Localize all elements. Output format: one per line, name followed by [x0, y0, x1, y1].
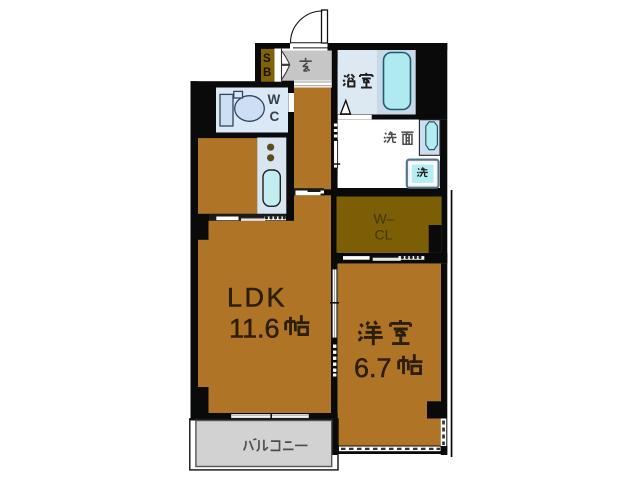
svg-text:B: B: [263, 67, 271, 79]
svg-text:CL: CL: [375, 227, 393, 243]
svg-text:S: S: [263, 53, 271, 65]
svg-text:6.7: 6.7: [354, 353, 392, 383]
svg-text:11.6: 11.6: [229, 314, 280, 344]
svg-text:W: W: [268, 92, 281, 107]
svg-text:C: C: [270, 109, 280, 124]
svg-text:LDK: LDK: [227, 283, 287, 313]
svg-text:W–: W–: [374, 211, 395, 227]
